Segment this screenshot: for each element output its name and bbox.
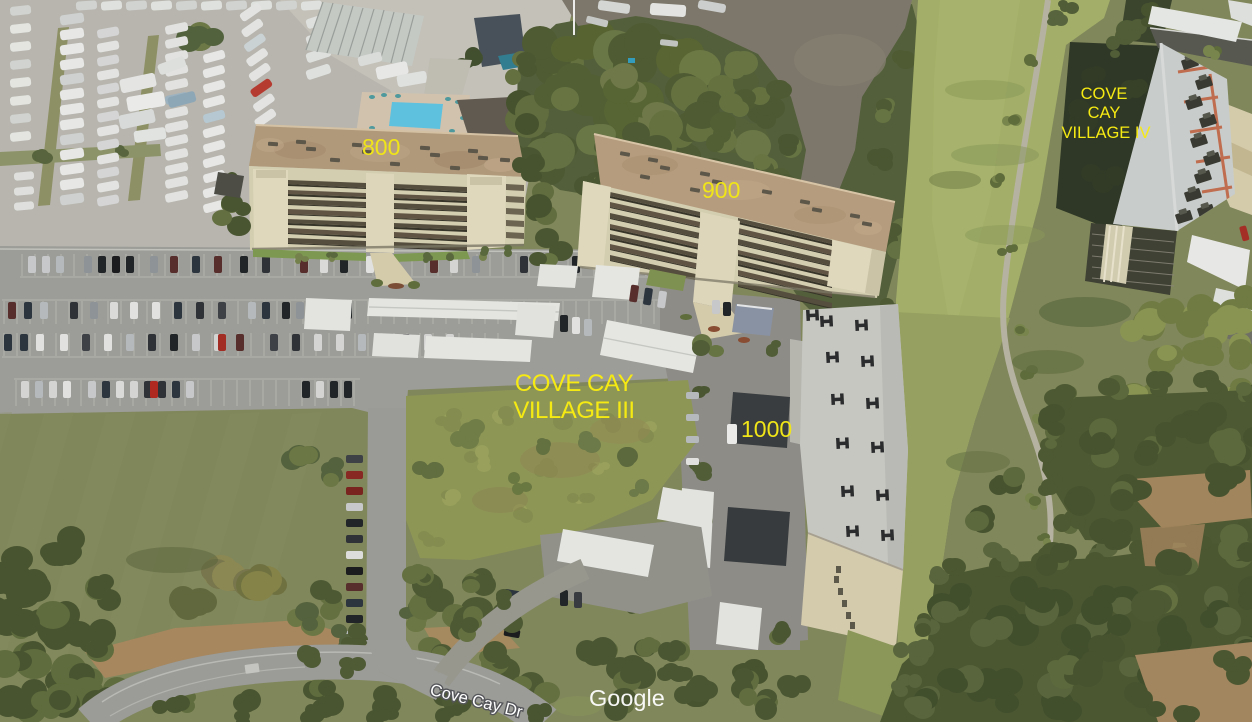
svg-text:VILLAGE IV: VILLAGE IV	[1062, 124, 1151, 142]
svg-text:CAY: CAY	[1088, 104, 1121, 122]
svg-text:VILLAGE III: VILLAGE III	[513, 397, 634, 424]
svg-text:COVE: COVE	[1081, 85, 1128, 103]
svg-text:Google: Google	[589, 685, 665, 711]
svg-text:COVE CAY: COVE CAY	[515, 370, 634, 397]
